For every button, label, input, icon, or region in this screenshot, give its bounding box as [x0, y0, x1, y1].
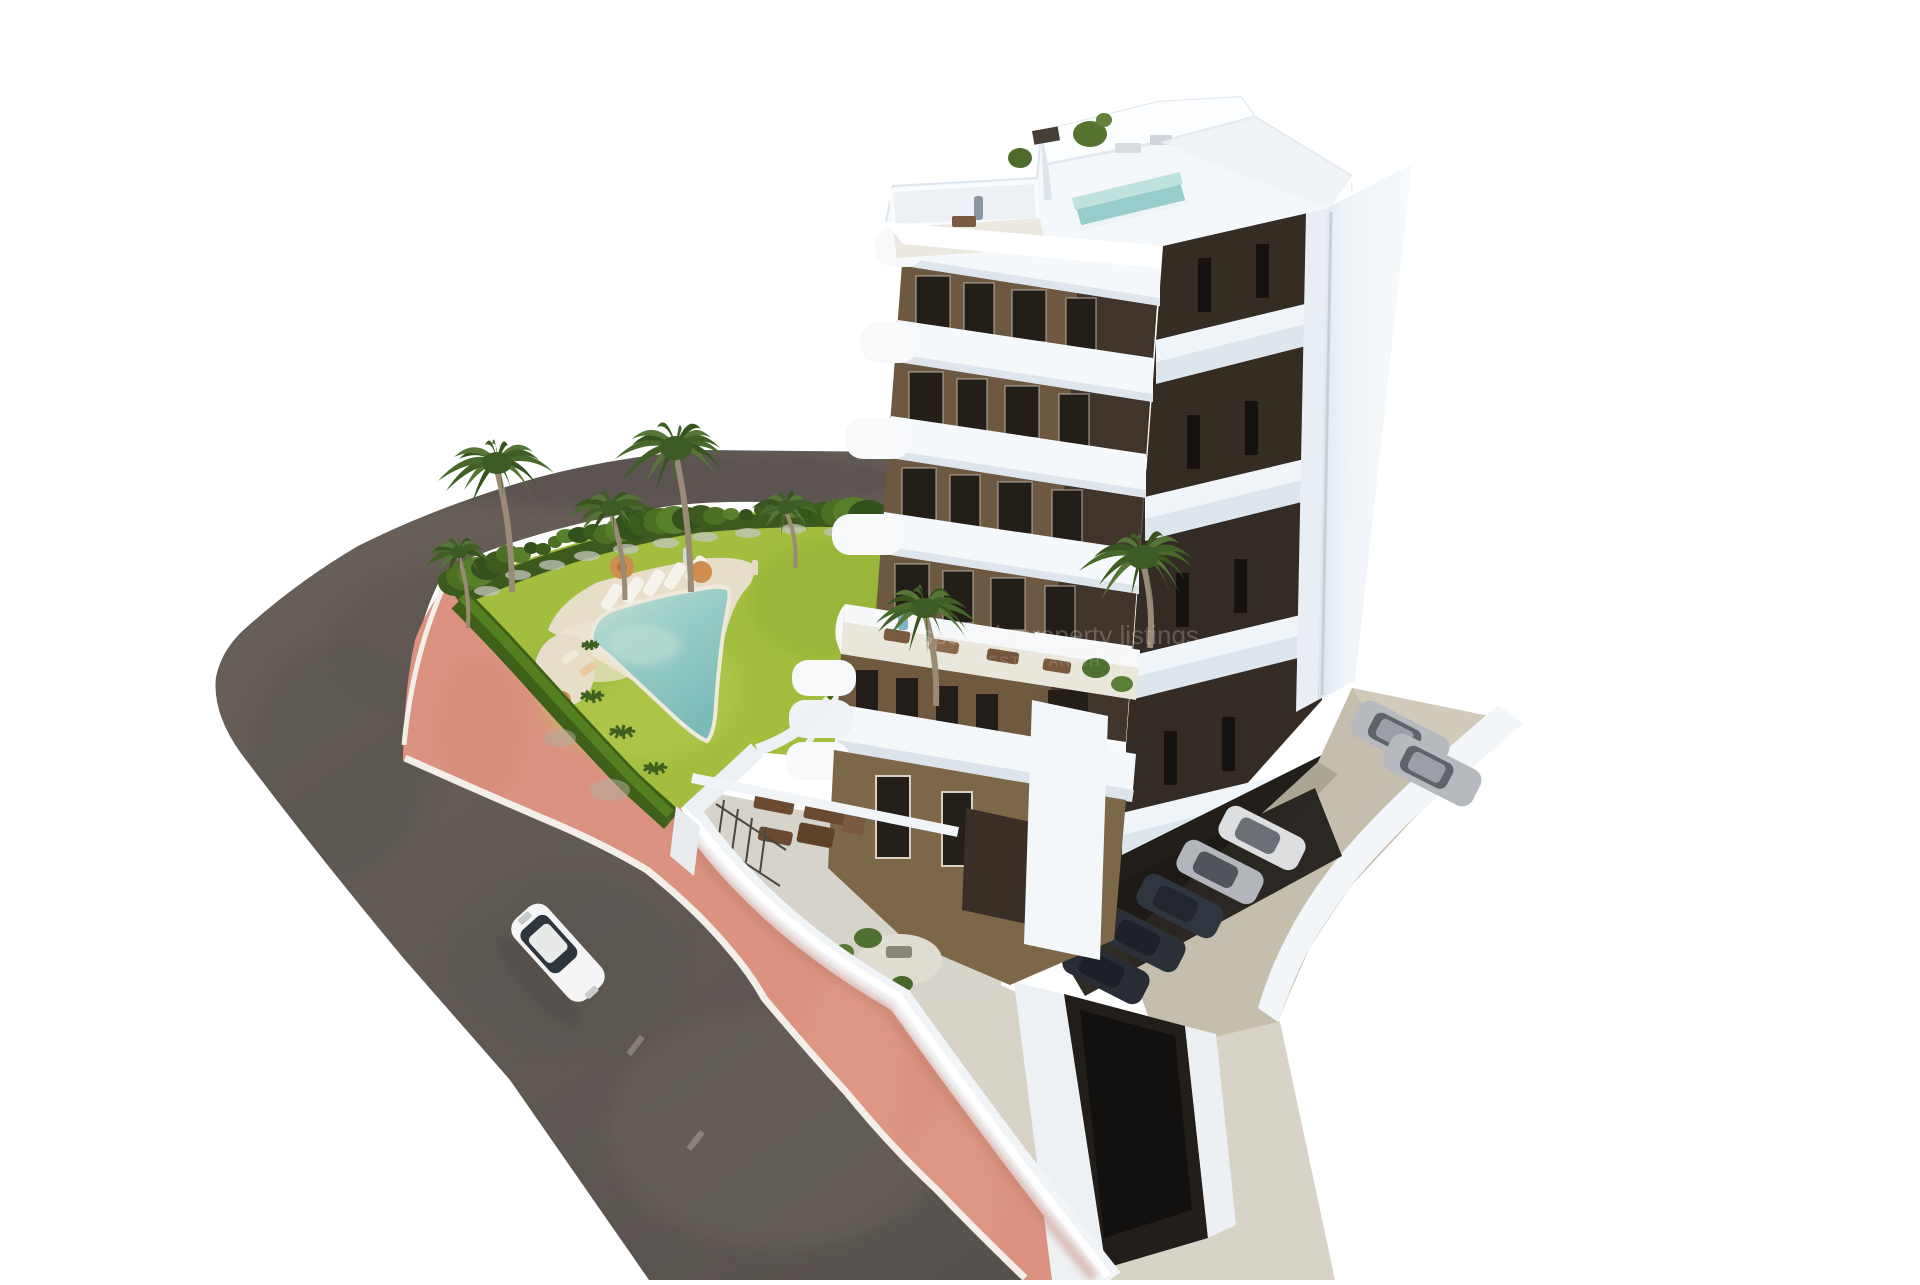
svg-text:LARGEST SPANISH PRO: LARGEST SPANISH PRO [942, 653, 1144, 669]
svg-text:spanish property listings: spanish property listings [920, 620, 1199, 650]
